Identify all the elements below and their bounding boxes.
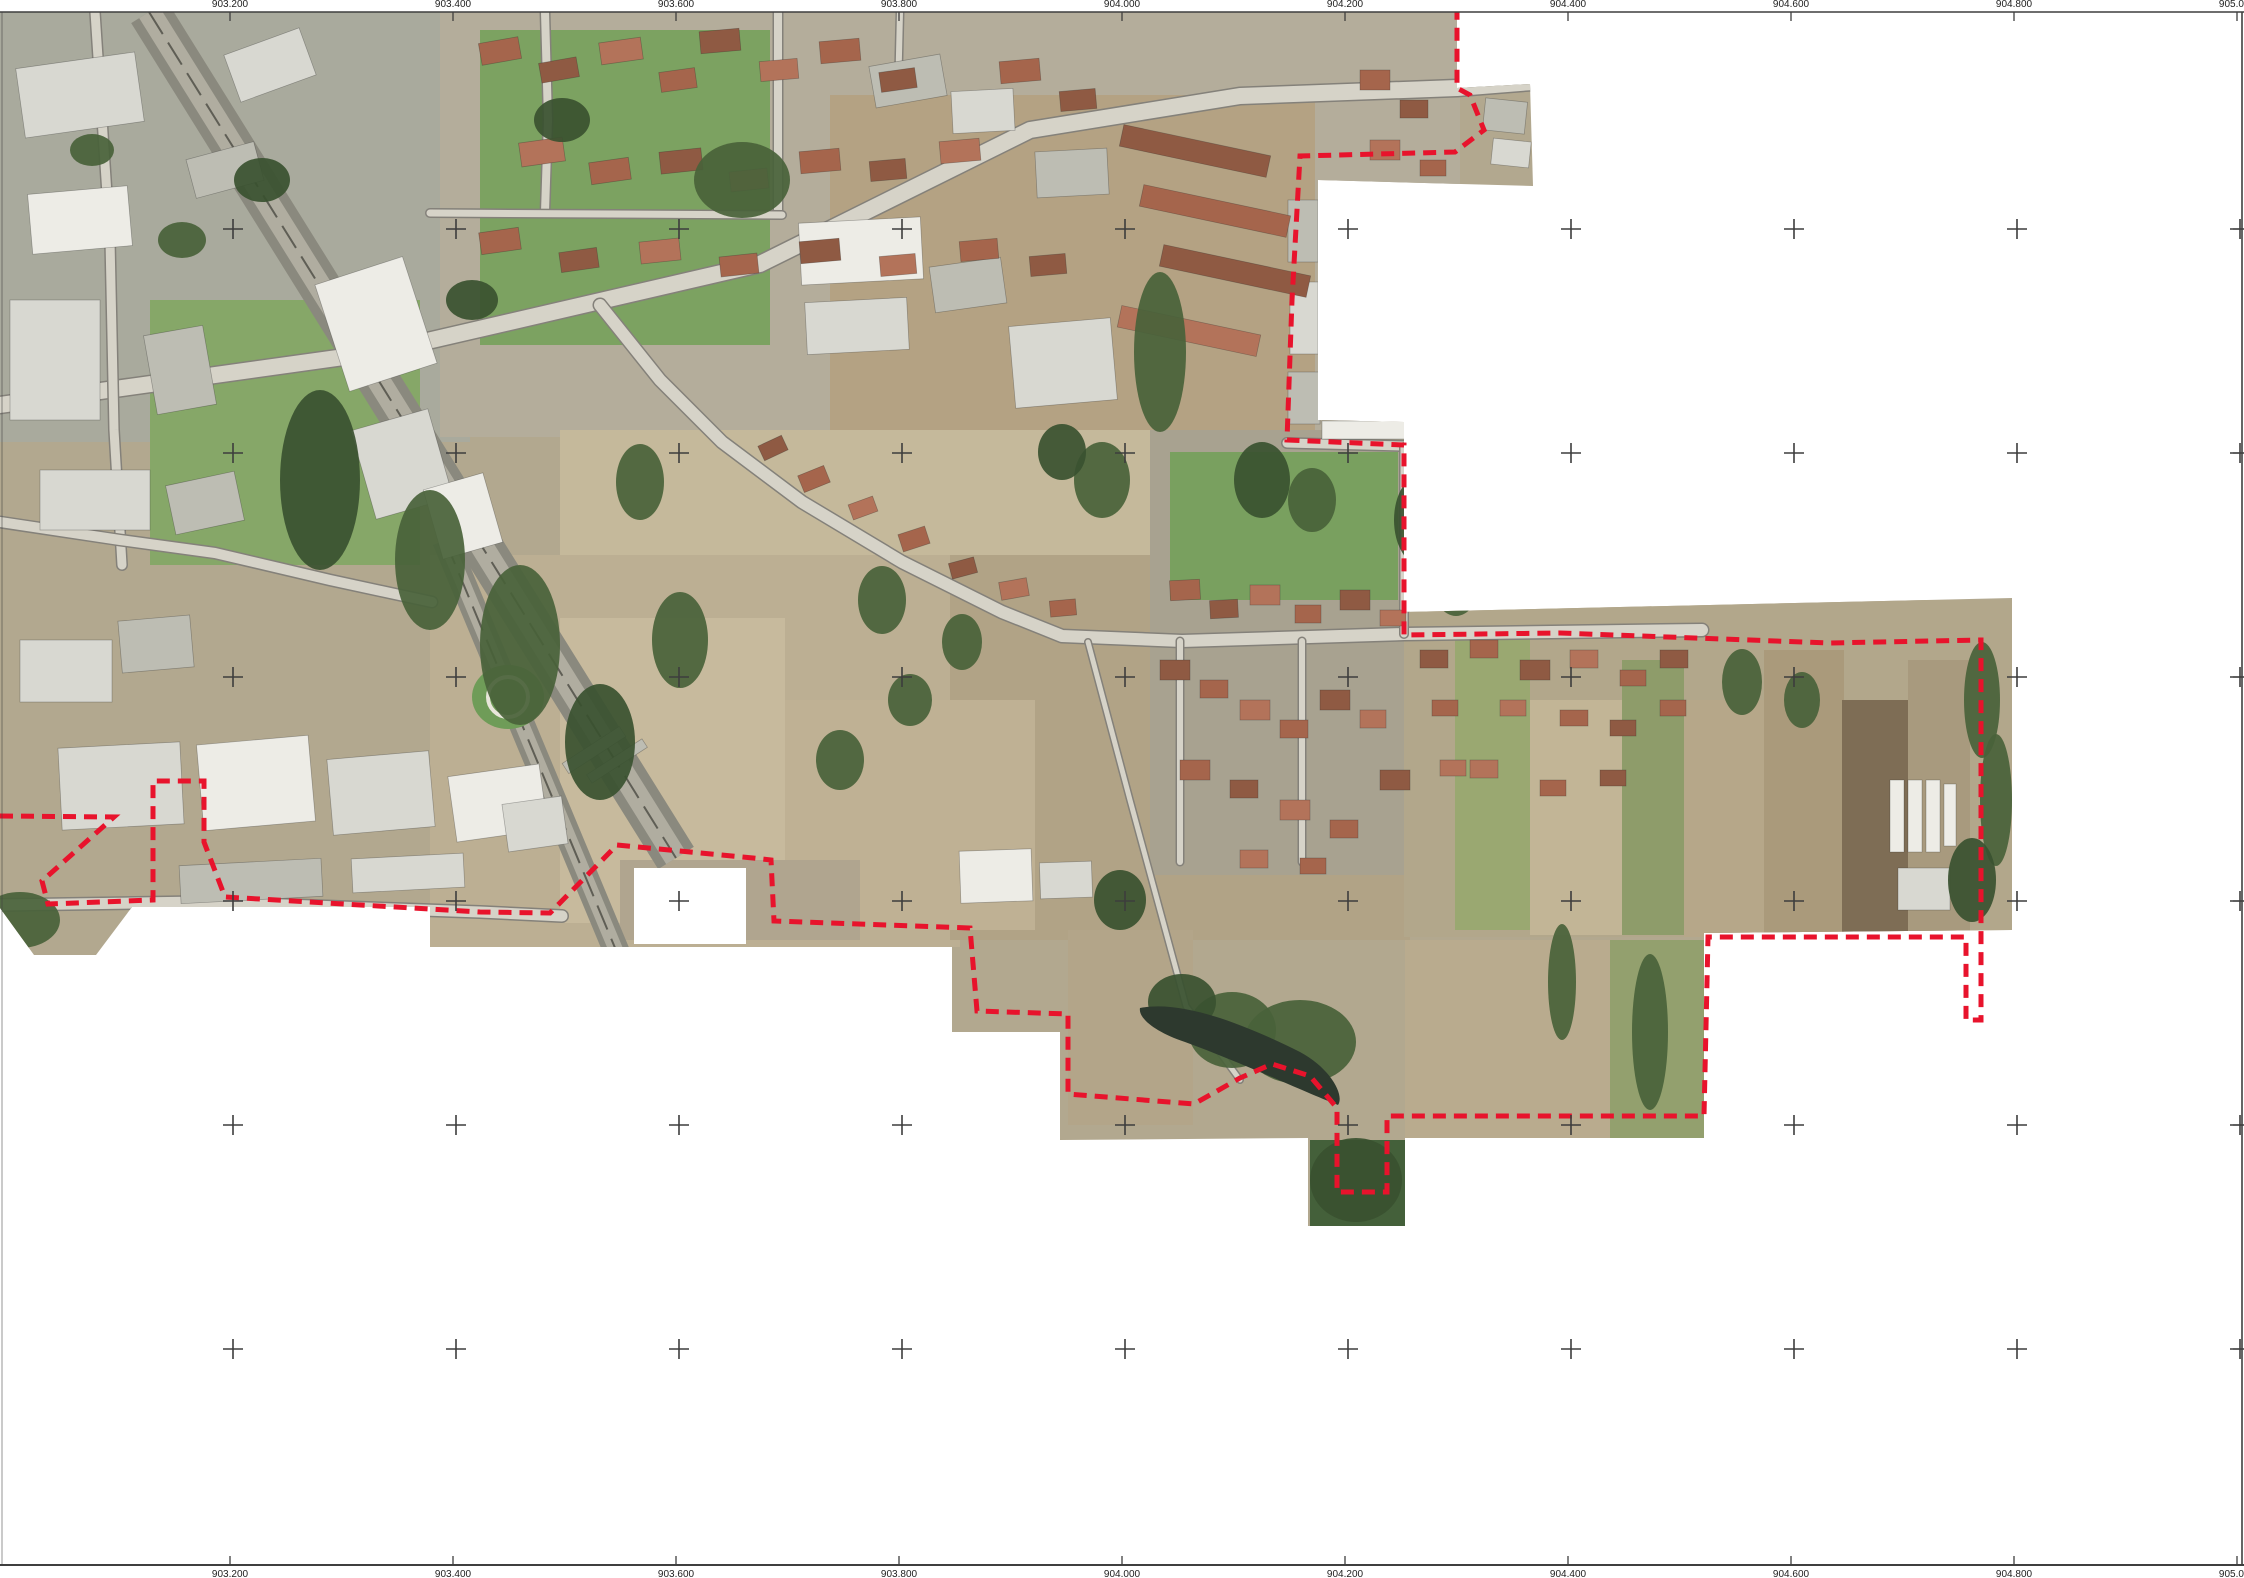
- building-roof: [20, 640, 112, 702]
- building-roof: [1240, 700, 1270, 720]
- building-roof: [1600, 770, 1626, 786]
- tree-cluster: [888, 674, 932, 726]
- imagery-gaps: [634, 868, 746, 944]
- building-roof: [1470, 640, 1498, 658]
- building-roof: [719, 253, 759, 277]
- building-roof: [1482, 98, 1527, 134]
- coord-label-top: 904.000: [1104, 0, 1141, 10]
- building-roof: [1420, 650, 1448, 668]
- building-roof: [1660, 700, 1686, 716]
- building-roof: [939, 138, 981, 163]
- coord-label-top: 904.400: [1550, 0, 1587, 10]
- building-roof: [1180, 760, 1210, 780]
- building-roof: [58, 742, 184, 830]
- building-roof: [1210, 599, 1239, 618]
- building-roof: [327, 751, 435, 836]
- building-roof: [999, 58, 1041, 83]
- building-roof: [40, 470, 150, 530]
- building-roof: [699, 28, 741, 53]
- building-roof: [1009, 318, 1118, 409]
- building-roof: [1420, 160, 1446, 176]
- coord-label-bottom: 904.200: [1327, 1569, 1364, 1578]
- tree-cluster: [234, 158, 290, 202]
- building-roof: [1520, 660, 1550, 680]
- coord-label-top: 903.800: [881, 0, 918, 10]
- tree-cluster: [158, 222, 206, 258]
- building-roof: [1240, 850, 1268, 868]
- building-roof: [196, 735, 315, 830]
- building-roof: [869, 158, 907, 181]
- building-roof: [1908, 780, 1922, 852]
- tree-cluster: [816, 730, 864, 790]
- building-roof: [1400, 100, 1428, 118]
- building-roof: [1250, 585, 1280, 605]
- tree-cluster: [395, 490, 465, 630]
- building-roof: [502, 796, 568, 852]
- building-roof: [805, 297, 910, 354]
- building-roof: [118, 615, 194, 673]
- coord-label-bottom: 905.000: [2219, 1569, 2244, 1578]
- building-roof: [1160, 660, 1190, 680]
- coord-label-top: 904.600: [1773, 0, 1810, 10]
- coord-label-bottom: 904.000: [1104, 1569, 1141, 1578]
- building-roof: [799, 148, 841, 173]
- building-roof: [1295, 605, 1321, 623]
- coord-label-top: 903.200: [212, 0, 249, 10]
- coord-label-bottom: 904.800: [1996, 1569, 2033, 1578]
- tree-cluster: [616, 444, 664, 520]
- building-roof: [639, 238, 681, 264]
- coord-label-bottom: 904.400: [1550, 1569, 1587, 1578]
- tree-cluster: [446, 280, 498, 320]
- building-roof: [1500, 700, 1526, 716]
- building-roof: [1491, 138, 1532, 168]
- building-roof: [1039, 861, 1092, 899]
- building-roof: [1620, 670, 1646, 686]
- map-sheet: 903.200903.200903.400903.400903.600903.6…: [0, 0, 2244, 1578]
- building-roof: [951, 88, 1015, 133]
- building-roof: [1320, 690, 1350, 710]
- tree-cluster: [942, 614, 982, 670]
- building-roof: [1610, 720, 1636, 736]
- coord-label-top: 904.200: [1327, 0, 1364, 10]
- tree-cluster: [1948, 838, 1996, 922]
- tree-cluster: [480, 565, 560, 725]
- building-roof: [929, 257, 1007, 313]
- field-patch: [1684, 700, 1764, 937]
- coord-label-top: 903.600: [658, 0, 695, 10]
- building-roof: [1200, 680, 1228, 698]
- tree-cluster: [1722, 649, 1762, 715]
- building-roof: [1470, 760, 1498, 778]
- building-roof: [1440, 760, 1466, 776]
- coord-label-bottom: 904.600: [1773, 1569, 1810, 1578]
- field-patch: [1455, 635, 1530, 930]
- building-roof: [879, 253, 917, 276]
- building-roof: [1340, 590, 1370, 610]
- orthophoto-plan-canvas: 903.200903.200903.400903.400903.600903.6…: [0, 0, 2244, 1578]
- building-roof: [1280, 720, 1308, 738]
- road-line: [1287, 443, 1404, 446]
- building-roof: [1360, 710, 1386, 728]
- building-roof: [1890, 780, 1904, 852]
- building-roof: [1059, 88, 1097, 111]
- building-roof: [759, 58, 799, 81]
- tree-cluster: [858, 566, 906, 634]
- building-roof: [1898, 868, 1950, 910]
- tree-cluster: [1134, 272, 1186, 432]
- coord-label-top: 903.400: [435, 0, 472, 10]
- building-roof: [1169, 579, 1200, 601]
- building-roof: [1660, 650, 1688, 668]
- building-roof: [1370, 140, 1400, 160]
- tree-cluster: [1038, 424, 1086, 480]
- coord-label-bottom: 903.200: [212, 1569, 249, 1578]
- building-roof: [1288, 372, 1320, 424]
- building-roof: [799, 238, 841, 263]
- building-roof: [959, 238, 999, 261]
- tree-cluster: [1288, 468, 1336, 532]
- tree-cluster: [1094, 870, 1146, 930]
- tree-cluster: [694, 142, 790, 218]
- coord-label-top: 904.800: [1996, 0, 2033, 10]
- coord-label-bottom: 903.800: [881, 1569, 918, 1578]
- building-roof: [1944, 784, 1956, 846]
- building-roof: [1926, 780, 1940, 852]
- tree-cluster: [70, 134, 114, 166]
- coord-label-top: 905.000: [2219, 0, 2244, 10]
- building-roof: [1540, 780, 1566, 796]
- tree-cluster: [534, 98, 590, 142]
- tree-cluster: [652, 592, 708, 688]
- building-roof: [1570, 650, 1598, 668]
- building-roof: [1360, 70, 1390, 90]
- building-roof: [1029, 253, 1067, 276]
- building-roof: [1432, 700, 1458, 716]
- building-roof: [10, 300, 100, 420]
- tree-cluster: [1784, 672, 1820, 728]
- building-roof: [1380, 770, 1410, 790]
- tree-cluster: [1632, 954, 1668, 1110]
- building-roof: [1560, 710, 1588, 726]
- building-roof: [819, 38, 861, 63]
- tree-cluster: [1548, 924, 1576, 1040]
- tree-cluster: [280, 390, 360, 570]
- building-roof: [28, 186, 133, 254]
- imagery-gap: [634, 868, 746, 944]
- building-roof: [1330, 820, 1358, 838]
- building-roof: [1035, 148, 1109, 198]
- building-roof: [959, 849, 1033, 903]
- coord-label-bottom: 903.400: [435, 1569, 472, 1578]
- tree-cluster: [1234, 442, 1290, 518]
- building-roof: [1280, 800, 1310, 820]
- building-roof: [1230, 780, 1258, 798]
- building-roof: [351, 853, 465, 893]
- building-roof: [1300, 858, 1326, 874]
- tree-cluster: [565, 684, 635, 800]
- building-roof: [1049, 599, 1076, 617]
- coord-label-bottom: 903.600: [658, 1569, 695, 1578]
